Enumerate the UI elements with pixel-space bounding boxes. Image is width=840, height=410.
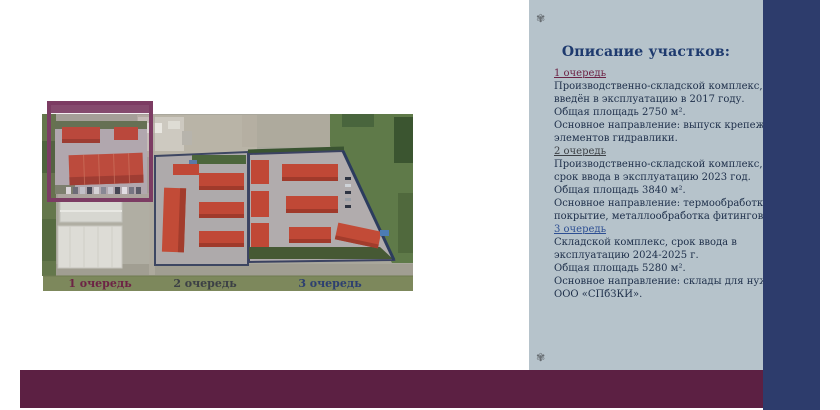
map-label-strip: 1 очередь 2 очередь 3 очередь — [43, 276, 413, 291]
section-1-heading: 1 очередь — [554, 67, 760, 80]
map-label-phase-3: 3 очередь — [298, 277, 362, 290]
right-accent-bar — [763, 0, 820, 410]
section-3-body: Складской комплекс, срок ввода в эксплуа… — [554, 236, 760, 301]
panel-title: Описание участков: — [529, 44, 763, 60]
existing-warehouses — [58, 201, 122, 268]
phase-1-area — [49, 103, 151, 200]
section-3-heading: 3 очередь — [554, 223, 760, 236]
map-label-phase-2: 2 очередь — [173, 277, 237, 290]
section-phase-2: 2 очередь Производственно-складской комп… — [554, 145, 760, 223]
section-2-body: Производственно-складской комплекс, срок… — [554, 158, 760, 223]
phase-2-area — [155, 152, 248, 265]
presentation-slide: 1 очередь 2 очередь 3 очередь ✾ Описание… — [0, 0, 840, 410]
ornament-icon: ✾ — [536, 12, 545, 25]
section-1-body: Производственно-складской комплекс, введ… — [554, 80, 760, 145]
map-label-phase-1: 1 очередь — [68, 277, 132, 290]
section-2-heading: 2 очередь — [554, 145, 760, 158]
site-map: 1 очередь 2 очередь 3 очередь — [42, 101, 413, 291]
site-aerial-map: 1 очередь 2 очередь 3 очередь — [42, 101, 413, 291]
section-phase-3: 3 очередь Складской комплекс, срок ввода… — [554, 223, 760, 301]
ornament-icon: ✾ — [536, 351, 545, 364]
section-phase-1: 1 очередь Производственно-складской комп… — [554, 67, 760, 145]
description-panel: ✾ Описание участков: 1 очередь Производс… — [529, 0, 763, 372]
bottom-accent-bar — [20, 370, 763, 408]
